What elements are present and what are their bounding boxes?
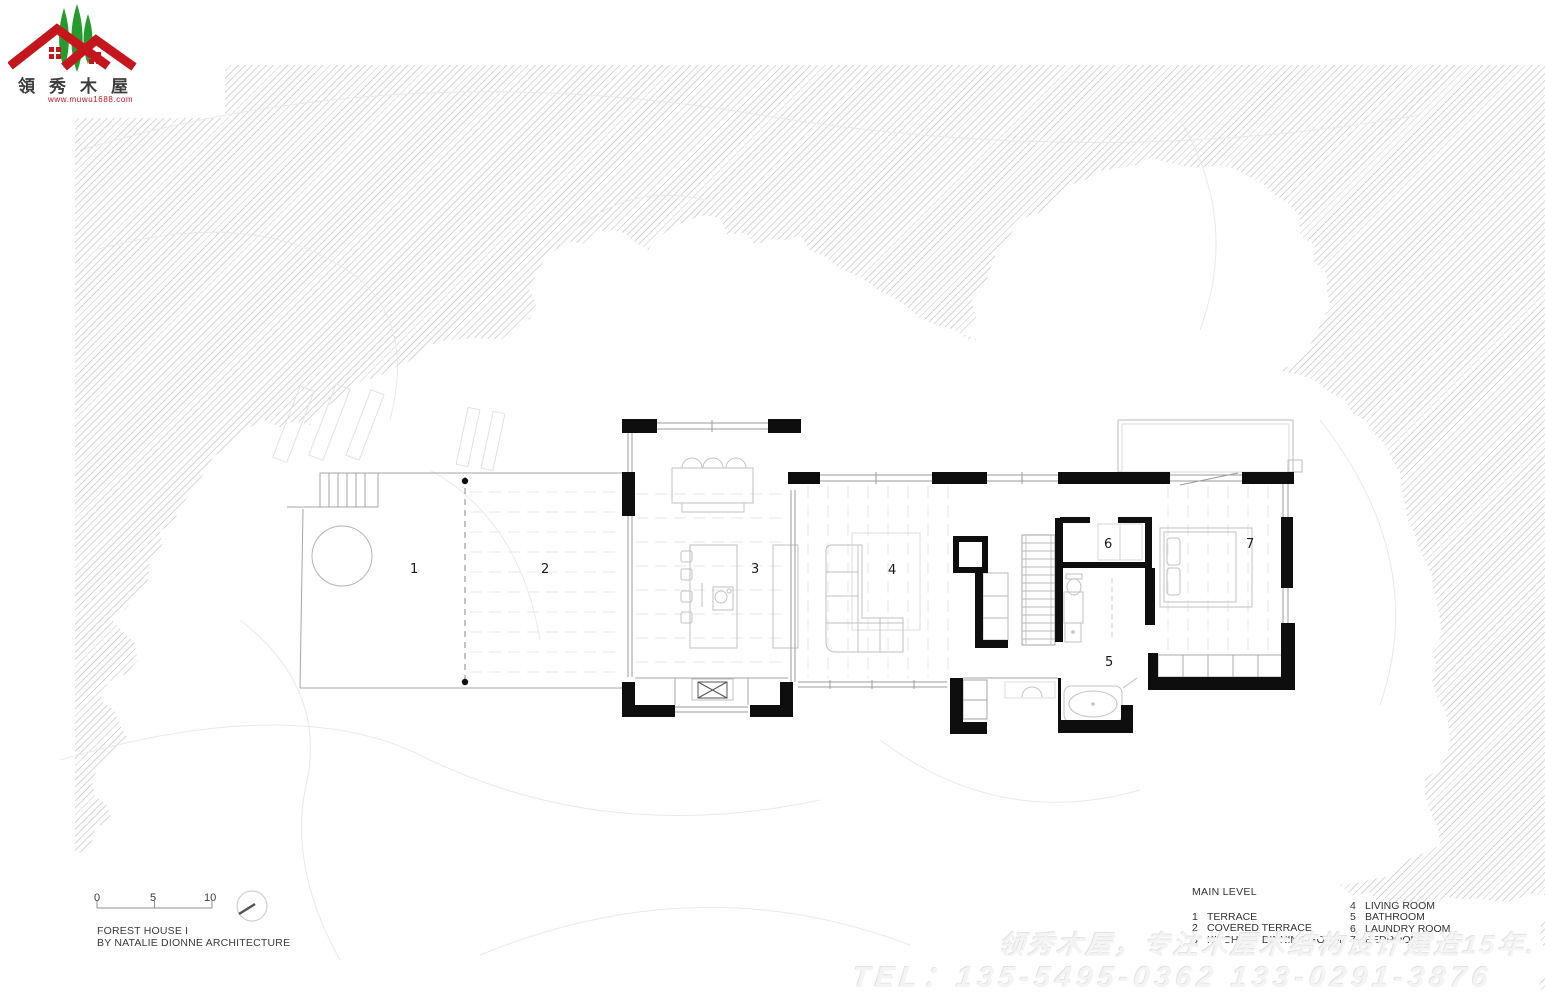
room-label-bathroom: 5 bbox=[1105, 655, 1113, 670]
kitchen-counter bbox=[773, 545, 798, 648]
company-logo: 領秀木屋 www.muwu1688.com bbox=[8, 4, 248, 114]
basin bbox=[1022, 687, 1042, 697]
door-swing bbox=[1123, 678, 1137, 688]
project-architect: BY NATALIE DIONNE ARCHITECTURE bbox=[97, 937, 290, 949]
legend-item: 4LIVING ROOM bbox=[1350, 900, 1450, 911]
dining-table bbox=[672, 468, 753, 503]
hall-closet-interior bbox=[959, 542, 982, 567]
floor-plan: 1 2 3 4 5 6 7 bbox=[0, 0, 1545, 1000]
room-labels: 1 2 3 4 5 6 7 bbox=[410, 537, 1254, 670]
sofa bbox=[826, 545, 903, 652]
hall-shelves bbox=[983, 573, 1008, 640]
dining-chair bbox=[726, 458, 746, 468]
scale-10: 10 bbox=[204, 892, 216, 904]
scale-5: 5 bbox=[150, 892, 156, 904]
pillow bbox=[1167, 568, 1180, 595]
legend-item: 5BATHROOM bbox=[1350, 911, 1450, 922]
scale-bar-block: 0 5 10 FOREST HOUSE I BY NATALIE DIONNE … bbox=[90, 888, 310, 998]
legend-item: 1TERRACE bbox=[1192, 911, 1342, 922]
bedroom-deck bbox=[1118, 420, 1293, 472]
room-label-living: 4 bbox=[888, 563, 896, 578]
furniture bbox=[312, 458, 1282, 722]
pillow bbox=[1167, 538, 1180, 565]
project-title: FOREST HOUSE I bbox=[97, 925, 188, 937]
room-label-bedroom: 7 bbox=[1246, 537, 1254, 552]
terrace-tree-circle bbox=[312, 526, 372, 586]
dining-chair bbox=[703, 458, 723, 468]
room-label-covered-terrace: 2 bbox=[541, 562, 549, 577]
logo-title: 領秀木屋 bbox=[18, 72, 142, 97]
logo-url: www.muwu1688.com bbox=[48, 95, 133, 104]
north-arrow bbox=[237, 891, 267, 921]
wardrobe bbox=[1158, 655, 1282, 677]
toilet bbox=[1067, 579, 1081, 595]
room-label-terrace: 1 bbox=[410, 562, 418, 577]
legend-title: MAIN LEVEL bbox=[1192, 886, 1257, 898]
terrace-divider bbox=[462, 477, 468, 686]
room-label-kitchen: 3 bbox=[751, 562, 759, 577]
logo-graphic bbox=[8, 4, 248, 74]
scale-bar: 0 5 10 bbox=[90, 888, 310, 924]
watermark-line2: TEL：135-5495-0362 133-0291-3876 bbox=[850, 954, 1495, 996]
vanity bbox=[1064, 592, 1083, 623]
dining-chair bbox=[682, 458, 702, 468]
room-label-laundry: 6 bbox=[1104, 537, 1112, 552]
toilet-tank bbox=[1066, 574, 1082, 579]
site-plan-sheet: { "logo": { "title": "領秀木屋", "url": "www… bbox=[0, 0, 1545, 1000]
